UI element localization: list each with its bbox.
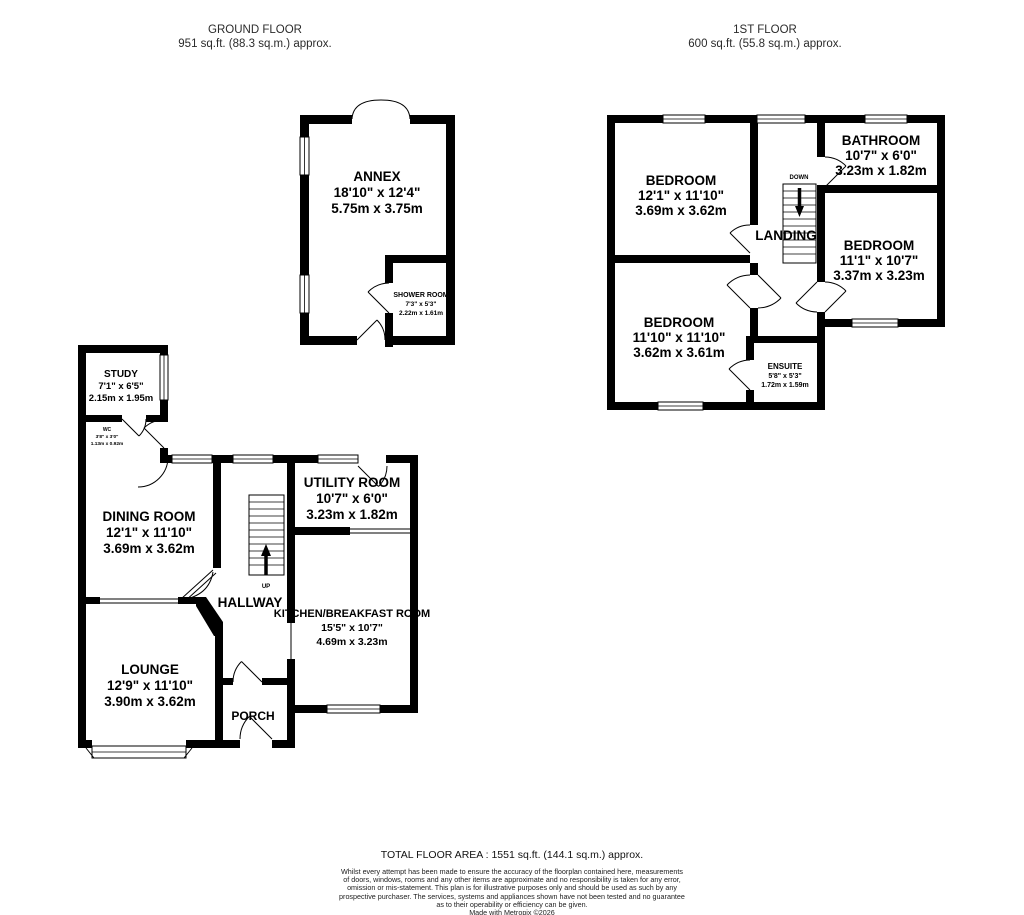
ensuite-label: ENSUITE 5'8" x 5'3" 1.72m x 1.59m [761,362,808,389]
room-imperial: 18'10" x 12'4" [334,185,421,200]
landing-label: LANDING [755,228,817,243]
svg-text:BATHROOM: BATHROOM [842,133,921,148]
ground-stairs: UP [249,495,284,590]
room-imperial: 7'3" x 5'3" [406,301,437,308]
svg-text:2.15m x 1.95m: 2.15m x 1.95m [89,393,153,404]
first-floor-stairs: DOWN [783,175,816,263]
svg-text:4.69m x 3.23m: 4.69m x 3.23m [316,636,387,648]
porch-label: PORCH [231,709,274,723]
hallway-label: HALLWAY [218,595,283,610]
ensuite-door [729,360,750,390]
shower-room-label: SHOWER ROOM 7'3" x 5'3" 2.22m x 1.61m [393,292,448,317]
svg-text:ENSUITE: ENSUITE [768,362,803,371]
window [318,455,358,463]
ground-floor-title: GROUND FLOOR [95,23,415,37]
annex-french-doors [352,100,410,119]
window [757,115,805,123]
svg-text:5'8" x 5'3": 5'8" x 5'3" [768,373,801,380]
window [300,275,309,313]
disclaimer: Whilst every attempt has been made to en… [0,868,1024,915]
svg-text:3.62m x 3.61m: 3.62m x 3.61m [633,345,725,360]
svg-text:3.23m x 1.82m: 3.23m x 1.82m [306,507,398,522]
svg-text:3'8" x 3'0": 3'8" x 3'0" [96,434,119,440]
svg-text:3.69m x 3.62m: 3.69m x 3.62m [635,203,727,218]
svg-text:1.13m x 0.92m: 1.13m x 0.92m [91,441,124,447]
total-floor-area: TOTAL FLOOR AREA : 1551 sq.ft. (144.1 sq… [0,849,1024,861]
svg-text:LOUNGE: LOUNGE [121,662,179,677]
window [300,137,309,175]
metropix-credit: Made with Metropix ©2026 [0,909,1024,915]
window [172,455,212,463]
window [852,319,898,327]
svg-text:7'1" x 6'5": 7'1" x 6'5" [98,381,143,392]
bedroom-1-label: BEDROOM 12'1" x 11'10" 3.69m x 3.62m [635,173,727,218]
kitchen-label: KITCHEN/BREAKFAST ROOM 15'5" x 10'7" 4.6… [274,608,430,648]
window [327,705,380,713]
room-name: SHOWER ROOM [393,292,448,299]
svg-text:3.23m x 1.82m: 3.23m x 1.82m [835,163,927,178]
window [160,355,168,400]
svg-text:KITCHEN/BREAKFAST ROOM: KITCHEN/BREAKFAST ROOM [274,608,430,620]
bay-window [86,746,192,758]
svg-text:15'5" x 10'7": 15'5" x 10'7" [321,622,383,634]
svg-text:BEDROOM: BEDROOM [644,315,715,330]
window [658,402,703,410]
svg-text:WC: WC [103,427,112,433]
svg-text:BEDROOM: BEDROOM [646,173,717,188]
first-floor-title: 1ST FLOOR [605,23,925,37]
wc-door [122,419,146,436]
floorplan-page: GROUND FLOOR 951 sq.ft. (88.3 sq.m.) app… [0,0,1024,915]
svg-text:HALLWAY: HALLWAY [218,595,283,610]
svg-text:LANDING: LANDING [755,228,817,243]
study-door [144,420,164,448]
study-label: STUDY 7'1" x 6'5" 2.15m x 1.95m [89,369,153,404]
shower-room-door [368,283,389,313]
svg-text:PORCH: PORCH [231,709,274,723]
bedroom-1-door [730,225,750,253]
bedroom-2-label: BEDROOM 11'1" x 10'7" 3.37m x 3.23m [833,238,925,283]
bedroom-3-door [727,275,781,308]
down-label: DOWN [790,175,809,181]
svg-text:11'1" x 10'7": 11'1" x 10'7" [840,253,919,268]
svg-text:1.72m x 1.59m: 1.72m x 1.59m [761,382,808,389]
window [233,455,273,463]
window [865,115,907,123]
lounge-label: LOUNGE 12'9" x 11'10" 3.90m x 3.62m [104,662,196,709]
svg-text:12'1" x 11'10": 12'1" x 11'10" [106,525,192,540]
svg-text:10'7" x 6'0": 10'7" x 6'0" [316,491,388,506]
bathroom-label: BATHROOM 10'7" x 6'0" 3.23m x 1.82m [835,133,927,178]
svg-text:10'7" x 6'0": 10'7" x 6'0" [845,148,917,163]
up-label: UP [262,584,270,590]
room-metric: 5.75m x 3.75m [331,201,423,216]
svg-text:BEDROOM: BEDROOM [844,238,915,253]
room-metric: 2.22m x 1.61m [399,310,443,317]
svg-text:11'10" x 11'10": 11'10" x 11'10" [633,330,726,345]
svg-text:3.37m x 3.23m: 3.37m x 3.23m [833,268,925,283]
svg-text:12'1" x 11'10": 12'1" x 11'10" [638,188,724,203]
first-floor-area: 600 sq.ft. (55.8 sq.m.) approx. [605,37,925,51]
svg-text:12'9" x 11'10": 12'9" x 11'10" [107,678,193,693]
annex-label: ANNEX 18'10" x 12'4" 5.75m x 3.75m [331,169,423,216]
svg-text:STUDY: STUDY [104,369,138,380]
bedroom-3-label: BEDROOM 11'10" x 11'10" 3.62m x 3.61m [633,315,726,360]
ground-floor-header: GROUND FLOOR 951 sq.ft. (88.3 sq.m.) app… [95,23,415,51]
first-floor-plan: DOWN BEDROOM 12'1" x 11'10" 3.69m x 3.62… [600,108,952,418]
first-floor-header: 1ST FLOOR 600 sq.ft. (55.8 sq.m.) approx… [605,23,925,51]
wc-label: WC 3'8" x 3'0" 1.13m x 0.92m [91,427,124,447]
utility-room-label: UTILITY ROOM 10'7" x 6'0" 3.23m x 1.82m [304,475,401,522]
bedroom-2-door [796,282,846,312]
window [663,115,705,123]
annex-door [357,320,385,340]
porch-inner-door [233,662,262,683]
svg-text:DINING ROOM: DINING ROOM [103,509,196,524]
ground-floor-plan: ANNEX 18'10" x 12'4" 5.75m x 3.75m SHOWE… [60,85,460,765]
ground-floor-area: 951 sq.ft. (88.3 sq.m.) approx. [95,37,415,51]
dining-room-label: DINING ROOM 12'1" x 11'10" 3.69m x 3.62m [103,509,196,556]
svg-text:3.69m x 3.62m: 3.69m x 3.62m [103,541,195,556]
svg-text:3.90m x 3.62m: 3.90m x 3.62m [104,694,196,709]
svg-text:UTILITY ROOM: UTILITY ROOM [304,475,401,490]
room-name: ANNEX [353,169,400,184]
